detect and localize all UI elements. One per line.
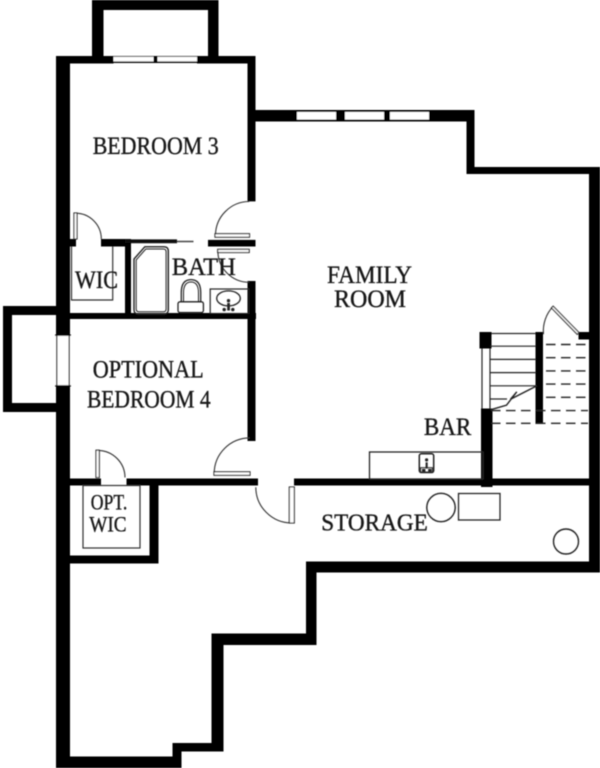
svg-text:WIC: WIC: [89, 512, 126, 537]
svg-text:BEDROOM 3: BEDROOM 3: [93, 133, 219, 160]
svg-text:BEDROOM 4: BEDROOM 4: [87, 387, 211, 414]
svg-text:FAMILY: FAMILY: [327, 262, 412, 289]
svg-text:STORAGE: STORAGE: [321, 511, 428, 537]
svg-text:BATH: BATH: [172, 254, 236, 281]
svg-text:BAR: BAR: [424, 414, 472, 441]
svg-text:WIC: WIC: [75, 267, 118, 294]
svg-text:ROOM: ROOM: [334, 286, 406, 313]
svg-text:OPTIONAL: OPTIONAL: [93, 357, 204, 384]
svg-text:OPT.: OPT.: [91, 489, 128, 514]
